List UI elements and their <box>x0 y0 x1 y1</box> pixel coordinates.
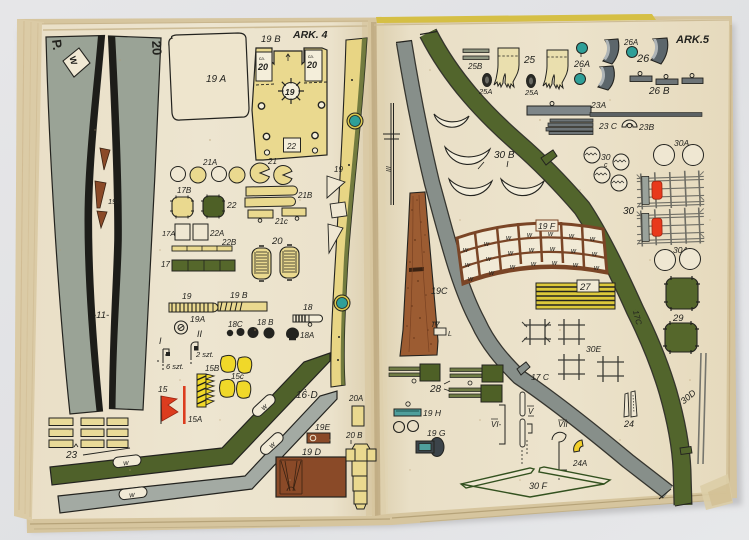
svg-text:19 D: 19 D <box>302 447 322 457</box>
svg-text:26: 26 <box>636 53 650 65</box>
svg-text:19 H: 19 H <box>423 408 442 418</box>
svg-text:24A: 24A <box>572 459 587 468</box>
svg-text:P.: P. <box>49 39 65 51</box>
svg-text:19 G: 19 G <box>427 428 446 438</box>
svg-text:25B: 25B <box>467 62 483 71</box>
svg-text:30 F: 30 F <box>529 481 548 491</box>
svg-text:20: 20 <box>306 60 317 70</box>
svg-text:30 B: 30 B <box>494 150 515 161</box>
svg-text:22: 22 <box>286 142 296 151</box>
svg-text:24: 24 <box>623 419 634 429</box>
svg-text:21c: 21c <box>274 217 288 226</box>
svg-text:19 A: 19 A <box>206 74 227 85</box>
svg-text:17B: 17B <box>177 186 192 195</box>
svg-text:17A: 17A <box>162 229 175 238</box>
svg-text:18A: 18A <box>300 331 314 340</box>
svg-text:23B: 23B <box>638 122 654 132</box>
svg-text:VII: VII <box>558 420 569 429</box>
svg-text:22A: 22A <box>209 229 224 238</box>
svg-text:29: 29 <box>672 313 684 324</box>
svg-text:23 C: 23 C <box>598 121 618 131</box>
svg-text:19E: 19E <box>315 422 330 432</box>
svg-text:-11-: -11- <box>93 310 109 321</box>
svg-text:c: c <box>604 162 608 169</box>
svg-text:20: 20 <box>271 236 283 247</box>
svg-text:19C: 19C <box>431 286 448 296</box>
svg-text:26A: 26A <box>573 59 590 69</box>
svg-text:6 szt.: 6 szt. <box>166 362 184 371</box>
svg-text:28: 28 <box>429 384 442 395</box>
svg-text:18: 18 <box>303 302 313 312</box>
svg-text:23A: 23A <box>590 100 606 110</box>
svg-text:19 F: 19 F <box>538 221 556 231</box>
svg-text:III: III <box>384 166 391 172</box>
svg-text:20: 20 <box>257 62 268 72</box>
svg-text:27: 27 <box>579 282 591 293</box>
svg-text:26A: 26A <box>623 38 638 47</box>
svg-text:ARK.5: ARK.5 <box>675 34 710 46</box>
svg-text:19: 19 <box>182 291 192 301</box>
svg-text:26 B: 26 B <box>648 86 670 97</box>
svg-text:21A: 21A <box>202 158 217 167</box>
svg-text:ARK. 4: ARK. 4 <box>292 29 328 41</box>
svg-text:18 B: 18 B <box>257 318 274 327</box>
svg-text:25: 25 <box>523 55 536 66</box>
svg-text:25A: 25A <box>524 88 538 97</box>
svg-text:VI-: VI- <box>491 420 502 429</box>
svg-text:19A: 19A <box>190 314 205 324</box>
svg-text:30: 30 <box>601 152 611 162</box>
svg-text:15B: 15B <box>205 364 220 373</box>
svg-text:21: 21 <box>267 157 277 166</box>
svg-text:19 B: 19 B <box>230 290 248 300</box>
svg-text:16̀·D: 16̀·D <box>296 388 318 401</box>
svg-text:II: II <box>197 329 203 339</box>
svg-text:20 B: 20 B <box>345 431 363 440</box>
svg-text:2 szt.: 2 szt. <box>195 350 214 359</box>
svg-text:30E: 30E <box>586 344 601 354</box>
svg-text:L: L <box>448 331 452 338</box>
svg-text:V: V <box>528 407 534 416</box>
svg-text:22: 22 <box>226 200 237 210</box>
svg-text:19ĸ: 19ĸ <box>108 197 121 206</box>
svg-text:17: 17 <box>161 260 170 269</box>
svg-text:ca.: ca. <box>259 56 265 61</box>
svg-text:21B: 21B <box>297 191 313 200</box>
svg-text:17 C: 17 C <box>531 372 550 382</box>
svg-text:15A: 15A <box>188 415 202 424</box>
svg-text:20A: 20A <box>348 394 363 403</box>
svg-text:30: 30 <box>623 206 635 217</box>
svg-text:19: 19 <box>285 87 295 97</box>
svg-text:20: 20 <box>149 40 165 55</box>
svg-text:19: 19 <box>334 165 343 174</box>
svg-text:ca.: ca. <box>308 54 314 59</box>
svg-text:19 B: 19 B <box>261 34 281 45</box>
svg-text:18C: 18C <box>228 320 243 329</box>
svg-text:15: 15 <box>158 384 168 394</box>
svg-text:25A: 25A <box>478 87 492 96</box>
svg-text:23: 23 <box>65 450 78 461</box>
